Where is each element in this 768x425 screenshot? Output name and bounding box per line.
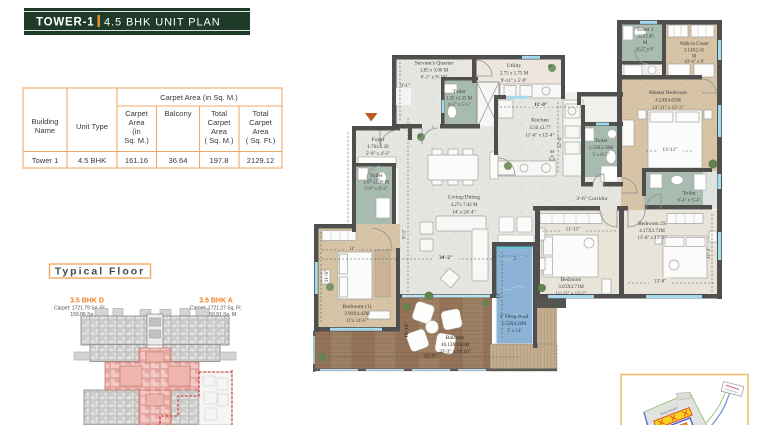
svg-text:12'-4": 12'-4"	[557, 136, 563, 149]
svg-text:Toilet: Toilet	[595, 138, 608, 144]
svg-text:2.75 x 1.75 M: 2.75 x 1.75 M	[500, 72, 529, 77]
svg-text:9'-1": 9'-1"	[400, 84, 410, 89]
svg-text:13'-11" x 15'-3": 13'-11" x 15'-3"	[652, 106, 684, 111]
svg-text:Unit Type: Unit Type	[76, 122, 108, 131]
svg-text:5'-9" x 4'-2": 5'-9" x 4'-2"	[366, 152, 390, 157]
svg-text:Toilet: Toilet	[683, 191, 696, 197]
svg-text:1.67 x2.30 M: 1.67 x2.30 M	[363, 181, 390, 186]
svg-text:6'-1" x 9'-10": 6'-1" x 9'-10"	[421, 76, 448, 81]
svg-text:M: M	[692, 55, 697, 60]
svg-text:Master Bedroom: Master Bedroom	[649, 90, 687, 96]
svg-text:Building: Building	[31, 117, 58, 126]
svg-text:3.63X3.71M: 3.63X3.71M	[558, 285, 584, 290]
svg-text:4.24X4.65M: 4.24X4.65M	[655, 99, 681, 104]
svg-text:Carpet: Carpet	[125, 109, 149, 118]
svg-text:3' Deep Pool: 3' Deep Pool	[500, 314, 529, 320]
svg-text:33'-3" x 10'.10": 33'-3" x 10'.10"	[439, 350, 470, 355]
svg-text:TOWER-1: TOWER-1	[36, 17, 94, 29]
svg-text:Total: Total	[211, 109, 227, 118]
svg-text:5': 5'	[513, 256, 517, 262]
svg-text:11': 11'	[349, 246, 355, 252]
svg-text:3.5 BHK D: 3.5 BHK D	[70, 298, 104, 305]
svg-text:( Sq. M.): ( Sq. M.)	[204, 136, 234, 145]
svg-text:11'-11": 11'-11"	[566, 226, 581, 232]
svg-text:3.90X4.42M: 3.90X4.42M	[344, 312, 370, 317]
svg-text:3.50 x3.77: 3.50 x3.77	[529, 126, 551, 131]
svg-text:10'-10": 10'-10"	[404, 322, 410, 337]
svg-text:Carpet: Carpet	[249, 118, 273, 127]
svg-text:10.13X3.65M: 10.13X3.65M	[441, 343, 470, 348]
svg-text:5' x 14': 5' x 14'	[507, 329, 521, 334]
svg-text:13'-11": 13'-11"	[663, 147, 678, 153]
svg-text:4.17X3.71M: 4.17X3.71M	[639, 229, 665, 234]
svg-text:M: M	[643, 41, 648, 46]
svg-text:Utility: Utility	[507, 63, 522, 69]
svg-text:Living/Dining: Living/Dining	[448, 195, 480, 201]
svg-text:Toilet: Toilet	[453, 89, 466, 95]
svg-text:Kitchen: Kitchen	[531, 118, 549, 124]
svg-text:1.85 x 3.00 M: 1.85 x 3.00 M	[420, 69, 449, 74]
svg-text:13'-8" x 12'-2": 13'-8" x 12'-2"	[637, 236, 666, 241]
svg-text:Toilet 1: Toilet 1	[636, 27, 653, 33]
svg-text:11'-6": 11'-6"	[324, 270, 330, 282]
svg-text:14': 14'	[496, 293, 502, 299]
svg-text:11'x 14'-6": 11'x 14'-6"	[346, 319, 368, 324]
svg-text:M: M	[550, 149, 554, 154]
svg-text:3.5 BHK A: 3.5 BHK A	[199, 298, 233, 305]
svg-text:Area: Area	[211, 127, 228, 136]
svg-text:Carpet: Carpet	[208, 118, 232, 127]
svg-text:( Sq. Ft.): ( Sq. Ft.)	[246, 136, 276, 145]
svg-text:.90X2.45: .90X2.45	[636, 35, 654, 40]
svg-text:Name: Name	[35, 126, 55, 135]
svg-text:1.76x 1.26: 1.76x 1.26	[367, 145, 389, 150]
svg-text:4.5 BHK UNIT PLAN: 4.5 BHK UNIT PLAN	[104, 17, 221, 29]
svg-text:11'-0": 11'-0"	[534, 102, 548, 108]
svg-text:1.35 x1.35 M: 1.35 x1.35 M	[446, 97, 473, 102]
svg-text:Sq. M.): Sq. M.)	[124, 136, 149, 145]
svg-text:3'-6" Corridor: 3'-6" Corridor	[576, 196, 608, 202]
svg-text:Area: Area	[128, 118, 145, 127]
svg-text:9'-3": 9'-3"	[402, 229, 408, 239]
svg-text:1.53X2.50M: 1.53X2.50M	[589, 146, 614, 151]
svg-text:5'-6" x 8'-2": 5'-6" x 8'-2"	[364, 187, 387, 192]
svg-text:Carpet Area (in Sq. M.): Carpet Area (in Sq. M.)	[160, 93, 238, 102]
svg-text:161.16: 161.16	[125, 156, 148, 165]
svg-text:4'-5" x 5'-5": 4'-5" x 5'-5"	[447, 103, 470, 108]
svg-text:Balcony: Balcony	[446, 335, 465, 341]
svg-text:11'-6" x 12'-4": 11'-6" x 12'-4"	[525, 134, 554, 139]
svg-text:10'-4" x 8': 10'-4" x 8'	[684, 60, 704, 65]
svg-text:33'-3": 33'-3"	[424, 354, 437, 360]
svg-text:36.64: 36.64	[168, 156, 187, 165]
svg-text:1.53X4.26M: 1.53X4.26M	[502, 322, 527, 327]
svg-text:Typical Floor: Typical Floor	[55, 266, 146, 278]
svg-text:Balcony: Balcony	[164, 109, 191, 118]
svg-text:6'-4" x 5'-4": 6'-4" x 5'-4"	[677, 199, 700, 204]
svg-text:Area: Area	[252, 127, 269, 136]
svg-text:Tower 1: Tower 1	[32, 156, 59, 165]
svg-text:197.8: 197.8	[209, 156, 228, 165]
svg-text:34'-2": 34'-2"	[439, 255, 453, 261]
svg-text:6'-3" x 8': 6'-3" x 8'	[636, 48, 653, 53]
svg-text:Toilet: Toilet	[370, 173, 383, 179]
svg-text:Total: Total	[252, 109, 268, 118]
svg-text:14' x 24'-4": 14' x 24'-4"	[452, 211, 475, 216]
svg-text:Bedroom: Bedroom	[561, 277, 582, 283]
svg-text:Bedroom 2S: Bedroom 2S	[638, 221, 666, 227]
svg-text:4.27x 7.42 M: 4.27x 7.42 M	[451, 203, 479, 208]
svg-text:2129.12: 2129.12	[247, 156, 274, 165]
svg-text:13'-8": 13'-8"	[654, 278, 667, 284]
svg-text:12'-2": 12'-2"	[706, 247, 712, 260]
svg-text:4.5 BHK: 4.5 BHK	[78, 156, 106, 165]
svg-text:Foyer: Foyer	[371, 137, 384, 143]
svg-text:(in: (in	[132, 127, 140, 136]
svg-text:9'-11" x 5'-9": 9'-11" x 5'-9"	[501, 79, 528, 84]
svg-text:5' x 8'-2": 5' x 8'-2"	[592, 153, 609, 158]
svg-text:3.14X2.45: 3.14X2.45	[684, 49, 705, 54]
svg-text:Servant's Quarter: Servant's Quarter	[415, 61, 454, 67]
svg-text:11'-11" x 12'-2": 11'-11" x 12'-2"	[555, 292, 586, 297]
svg-text:Walk-in Closet: Walk-in Closet	[680, 42, 709, 47]
svg-text:Bedroom (1): Bedroom (1)	[343, 303, 372, 310]
